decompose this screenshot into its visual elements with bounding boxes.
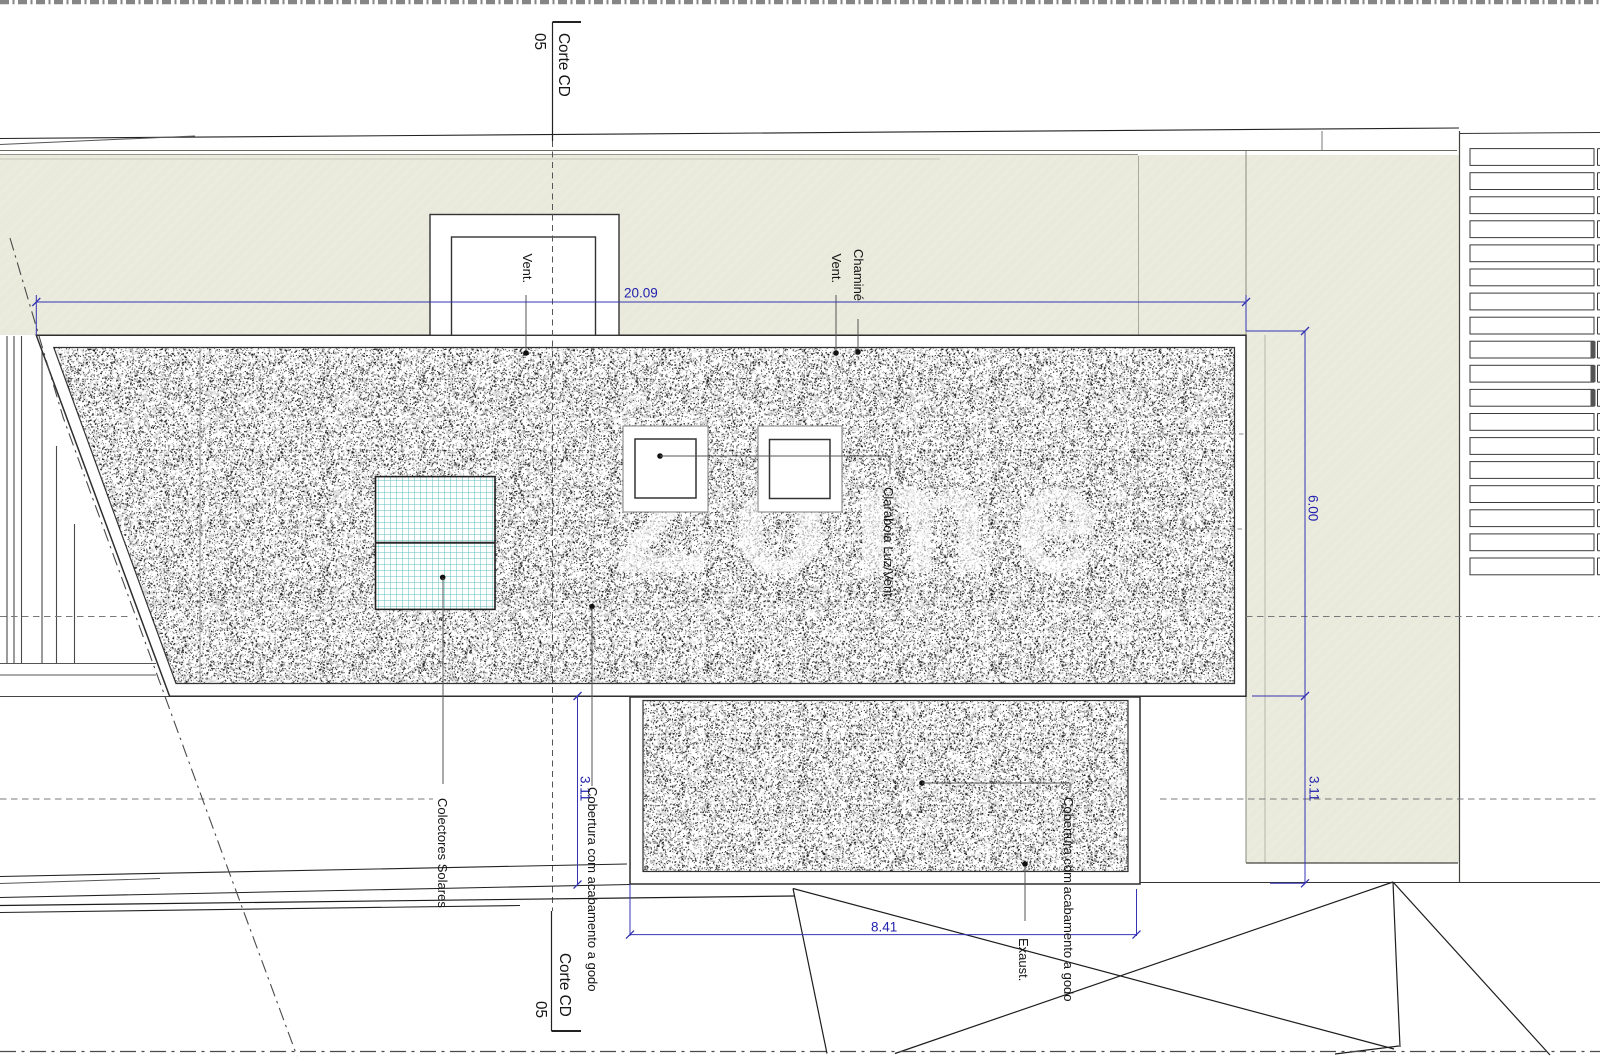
svg-text:Vent.: Vent. [520,254,535,284]
svg-text:Claraboia Luz/Vent.: Claraboia Luz/Vent. [881,487,896,600]
svg-text:Corte CD: Corte CD [556,953,573,1017]
svg-text:Chaminé: Chaminé [851,249,866,301]
svg-text:05: 05 [532,1001,549,1018]
svg-text:Vent.: Vent. [829,254,844,284]
svg-text:Colectores Solares: Colectores Solares [435,798,450,908]
svg-text:8.41: 8.41 [871,920,897,935]
svg-text:6.00: 6.00 [1306,495,1321,521]
svg-text:Cobertura com acabamento a god: Cobertura com acabamento a godo [1061,797,1076,1002]
svg-text:Cobertura com acabamento a god: Cobertura com acabamento a godo [585,787,600,992]
svg-text:20.09: 20.09 [624,286,658,301]
svg-text:05: 05 [531,33,548,50]
svg-text:Corte CD: Corte CD [555,33,572,97]
svg-text:3.11: 3.11 [1307,776,1322,801]
svg-text:Exaust.: Exaust. [1016,938,1031,981]
